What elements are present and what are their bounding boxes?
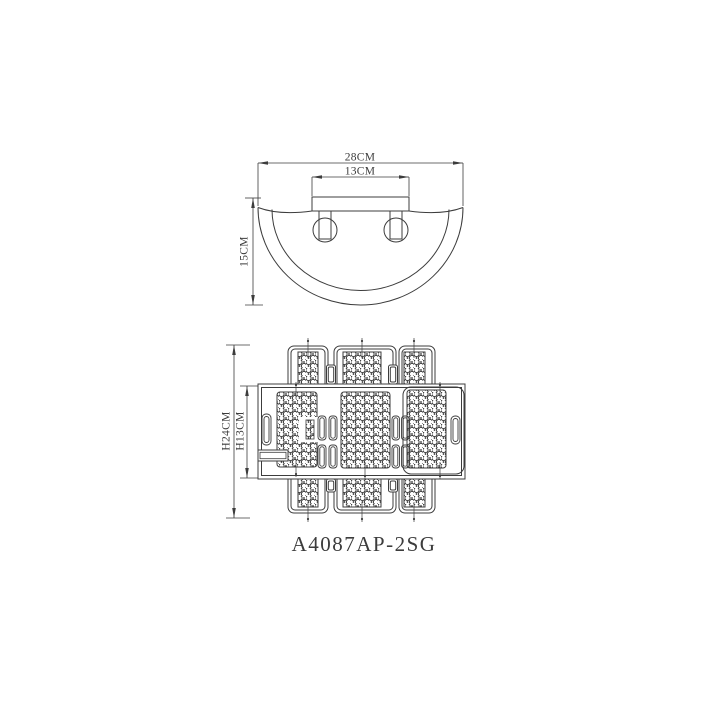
- lamp-socket-right: [384, 211, 408, 242]
- arrowhead: [258, 161, 268, 165]
- shade-top-edge-left: [258, 208, 312, 213]
- arrowhead: [232, 345, 236, 355]
- mounting-arm: [258, 450, 288, 461]
- technical-drawing-page: 28CM 13CM 15CM: [0, 0, 715, 715]
- arrowhead: [453, 161, 463, 165]
- shade-top-edge-right: [409, 208, 463, 213]
- front-band: [258, 384, 465, 479]
- dimension-13cm: 13CM: [312, 166, 409, 197]
- top-view: 28CM 13CM 15CM: [239, 152, 464, 306]
- crystal-panel-right: [407, 390, 446, 468]
- drawing-canvas: 28CM 13CM 15CM: [0, 0, 715, 715]
- dim-label-15cm: 15CM: [239, 236, 251, 267]
- arrowhead: [245, 386, 249, 396]
- part-number: A4087AP-2SG: [292, 532, 437, 556]
- dimension-15cm: 15CM: [239, 198, 264, 305]
- dim-label-28cm: 28CM: [345, 152, 376, 164]
- sconce-profile: [258, 197, 463, 305]
- dimension-h13cm: H13CM: [235, 386, 259, 478]
- arrowhead: [251, 198, 255, 208]
- crystal-panel-center: [341, 392, 390, 468]
- mounting-plate: [312, 197, 409, 211]
- dim-label-13cm: 13CM: [345, 166, 376, 178]
- shade-inner-arc: [272, 210, 449, 291]
- crystal-notch-strip: [306, 420, 314, 439]
- arrowhead: [251, 295, 255, 305]
- dim-label-h24cm: H24CM: [221, 411, 233, 450]
- arrowhead: [232, 508, 236, 518]
- arrowhead: [312, 175, 322, 179]
- lamp-socket-left: [313, 211, 337, 242]
- bottom-view: H24CM H13CM: [221, 338, 466, 522]
- arrowhead: [245, 468, 249, 478]
- arrowhead: [399, 175, 409, 179]
- dim-label-h13cm: H13CM: [235, 411, 247, 450]
